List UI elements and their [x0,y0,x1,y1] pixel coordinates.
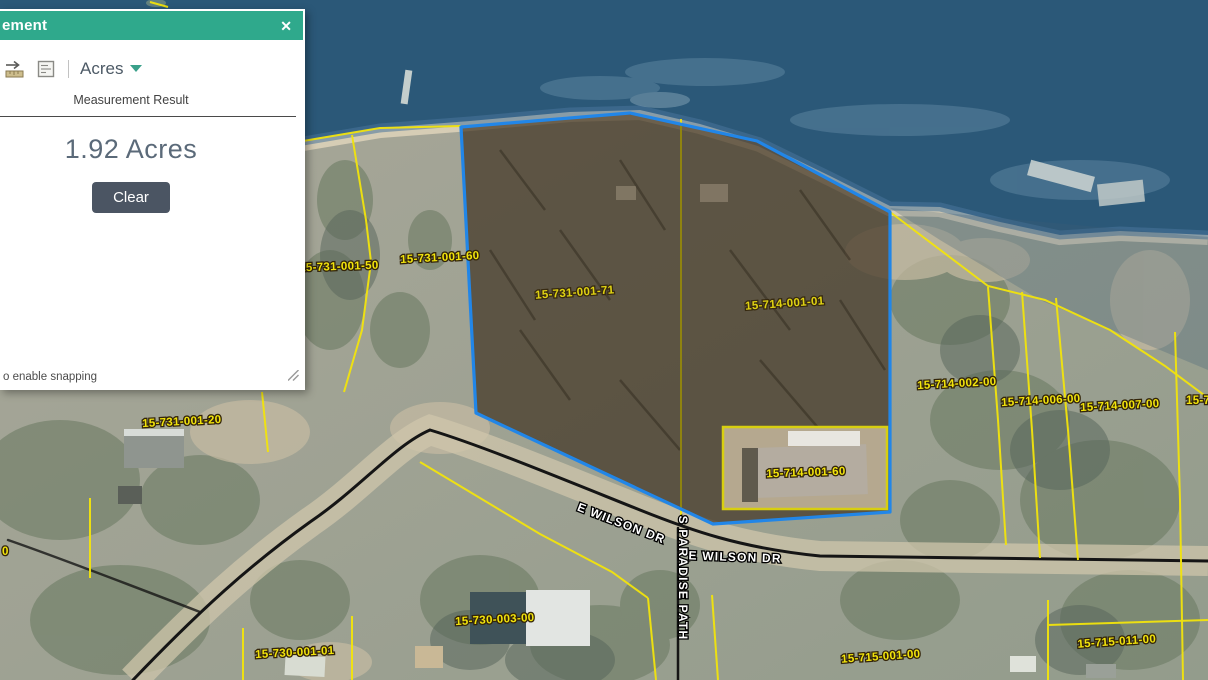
result-value-section: 1.92 Acres Clear [0,134,262,213]
chevron-down-icon [130,65,142,72]
parcel-label: 0 [2,546,9,558]
unit-dropdown-label: Acres [80,59,123,79]
result-heading: Measurement Result [0,93,262,107]
toolbar-separator [68,60,69,78]
app-window: E WILSON DR E WILSON DR S PARADISE PATH … [0,0,1208,680]
measurement-toolbar: Acres [0,40,303,80]
parcel-label: 15-7 [1186,395,1208,407]
clear-button[interactable]: Clear [92,182,170,213]
resize-handle[interactable] [288,368,299,386]
panel-title: ement [2,17,278,34]
road-label: S PARADISE PATH [676,516,690,641]
result-section: Measurement Result [0,93,262,107]
location-measure-icon[interactable] [35,58,57,80]
divider [0,116,296,117]
measurement-result-value: 1.92 Acres [0,134,262,165]
close-icon[interactable]: ✕ [278,17,294,35]
snapping-hint: o enable snapping [3,371,97,383]
unit-dropdown[interactable]: Acres [80,59,142,79]
panel-header: ement ✕ [0,11,303,40]
distance-measure-icon[interactable] [4,58,26,80]
measurement-panel: ement ✕ [0,9,305,390]
